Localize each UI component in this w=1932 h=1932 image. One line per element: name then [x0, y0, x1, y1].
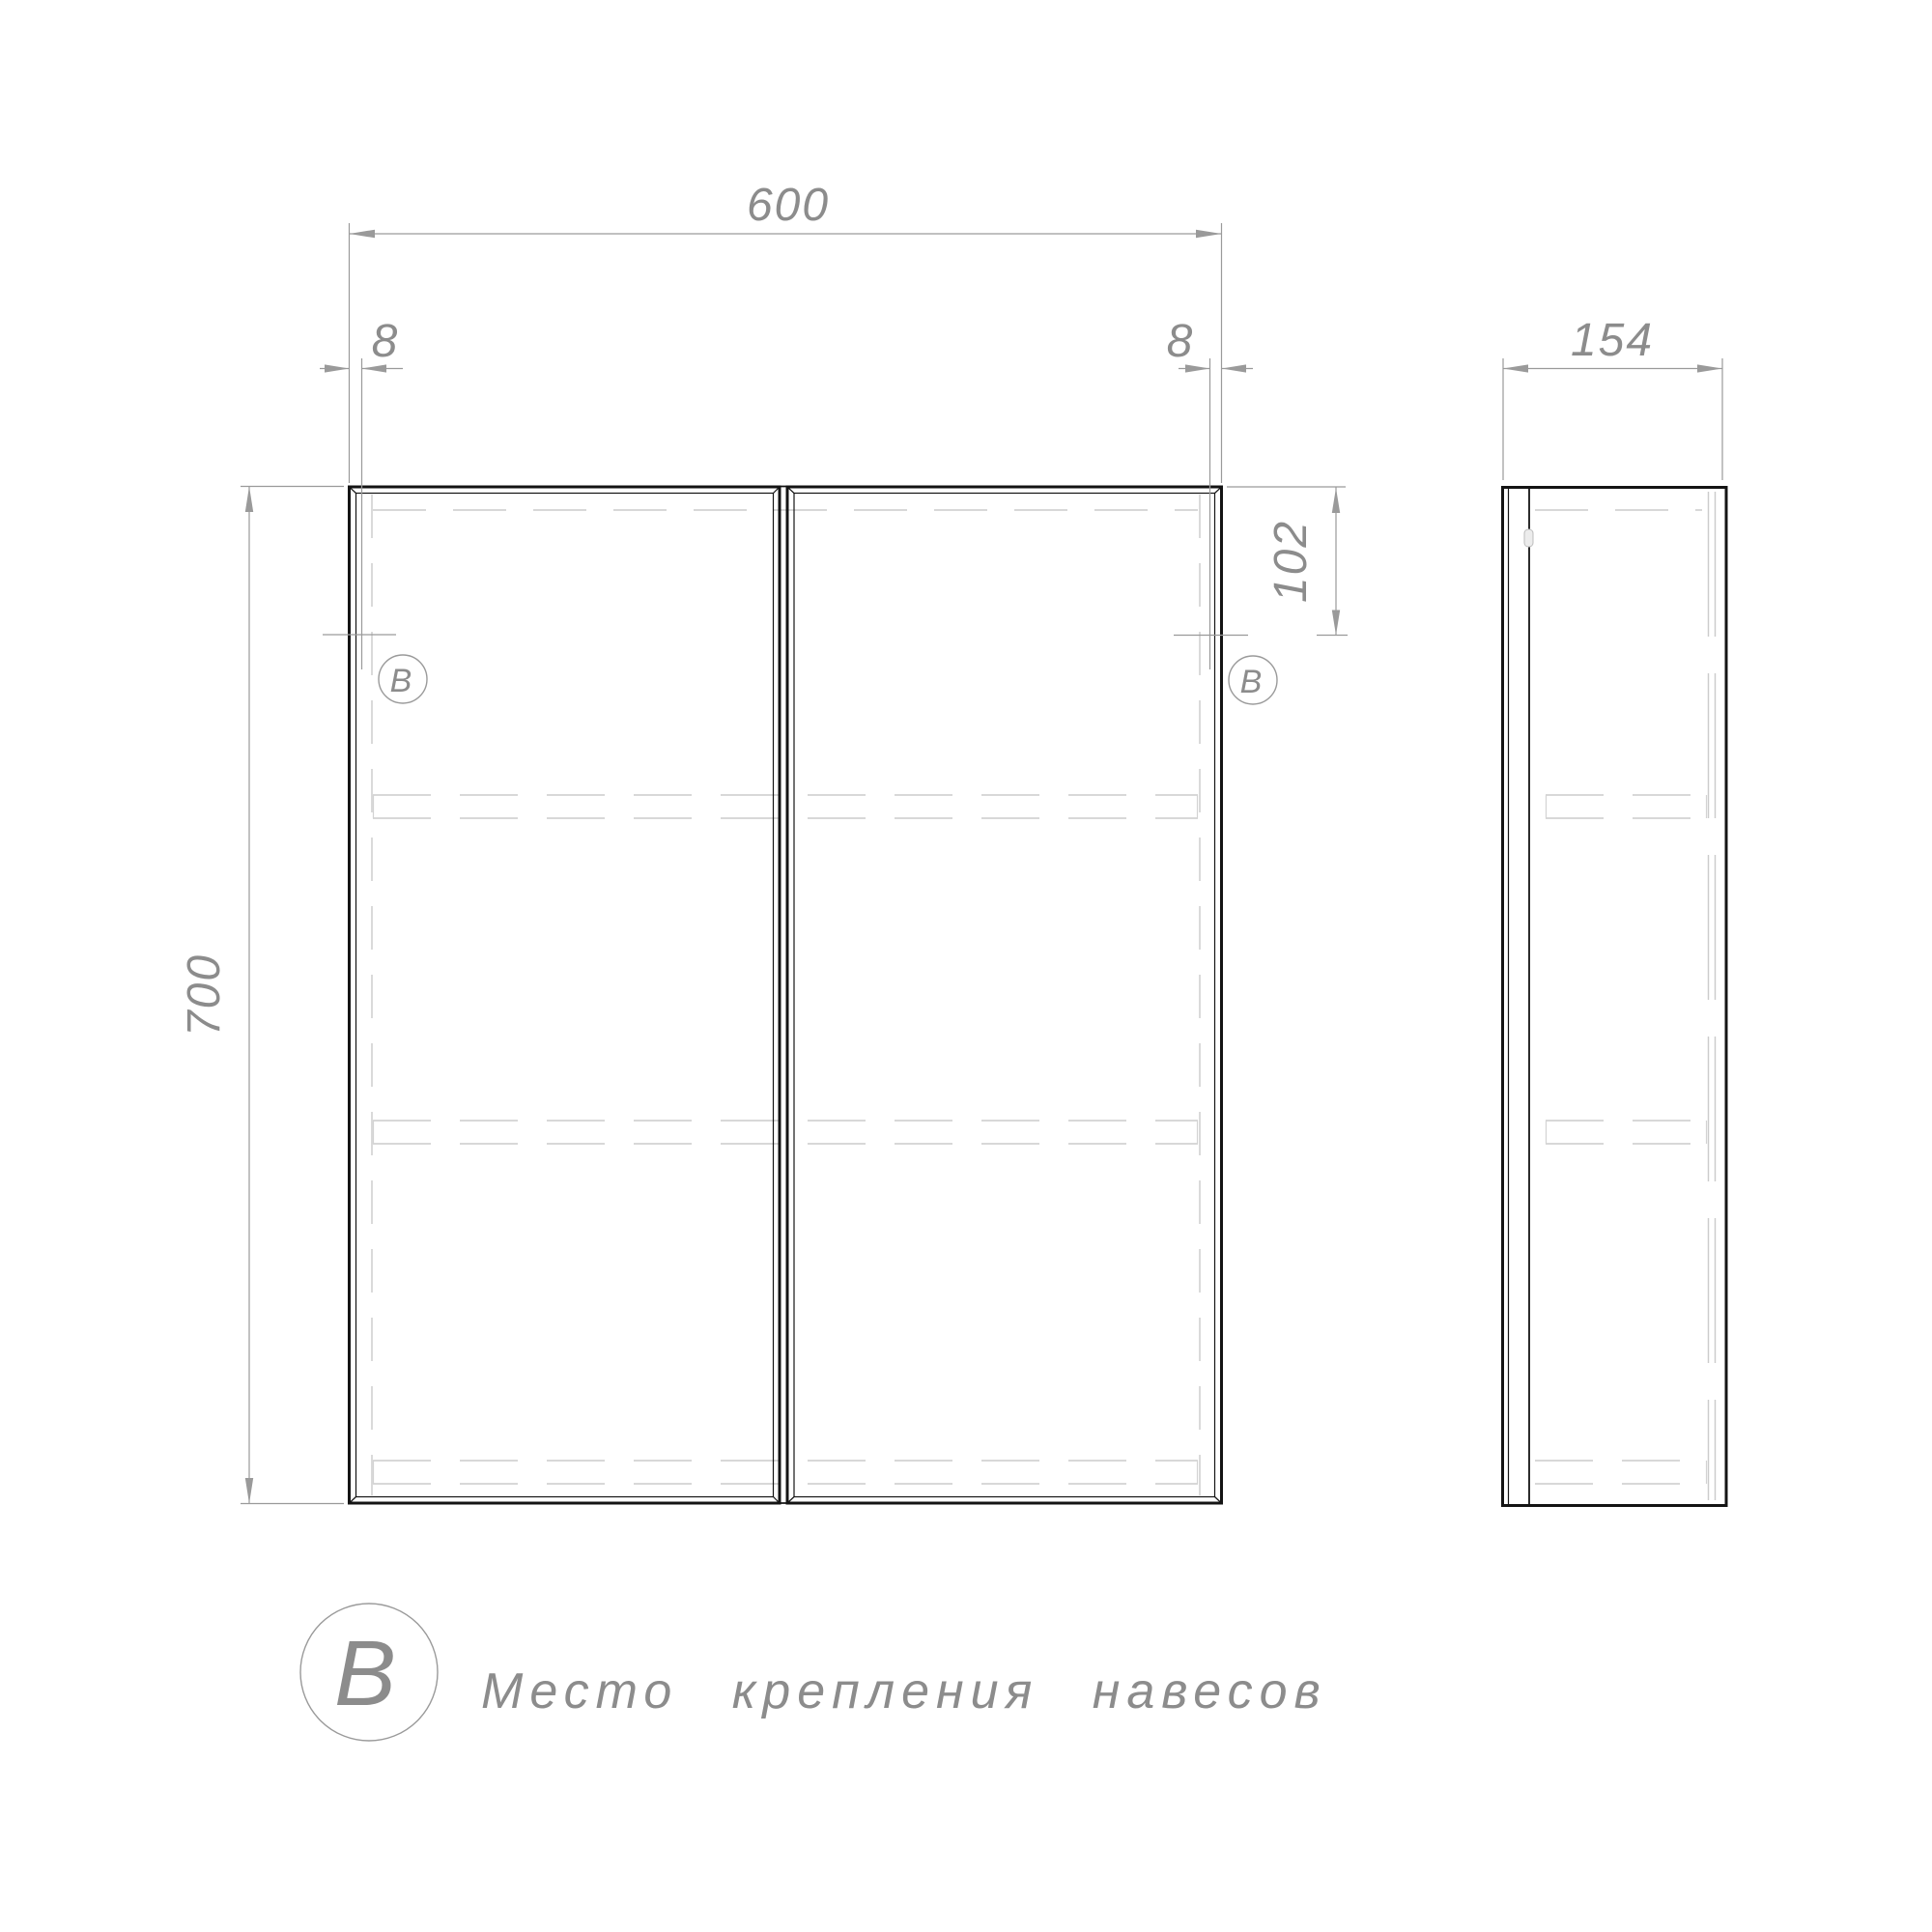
dim-height-label: 700 — [179, 953, 230, 1037]
front-view-left-door — [350, 487, 781, 1503]
front-view-carcass — [349, 487, 1222, 1504]
legend-text: Место крепления навесов — [481, 1663, 1327, 1719]
dim-width-label: 600 — [747, 180, 830, 231]
front-view-right-door — [787, 487, 1222, 1503]
dimension-height-700: 700 — [179, 487, 344, 1504]
side-view-body — [1503, 488, 1727, 1506]
dimension-depth-154: 154 — [1503, 315, 1722, 480]
dim-offset-left-label: 8 — [372, 316, 400, 367]
mounting-tick-marks — [323, 635, 1248, 636]
legend-symbol: В — [334, 1622, 396, 1725]
dim-offset-right-label: 8 — [1167, 316, 1195, 367]
hinge-mark — [1524, 529, 1533, 547]
mount-marker-right: В — [1229, 656, 1277, 704]
dimension-mount-102: 102 — [1227, 487, 1348, 636]
mount-marker-left-label: В — [390, 663, 412, 699]
legend: В Место крепления навесов — [300, 1604, 1327, 1741]
dim-depth-label: 154 — [1571, 315, 1654, 366]
mount-marker-left: В — [379, 655, 427, 703]
dim-mount-offset-label: 102 — [1265, 520, 1317, 603]
drawing-canvas: В В 600 8 8 102 — [0, 0, 1932, 1932]
mount-marker-right-label: В — [1240, 664, 1263, 700]
technical-drawing-cabinet: В В 600 8 8 102 — [0, 0, 1932, 1932]
dimension-width-600: 600 — [350, 180, 1222, 483]
side-view-hidden-lines — [1535, 492, 1716, 1500]
